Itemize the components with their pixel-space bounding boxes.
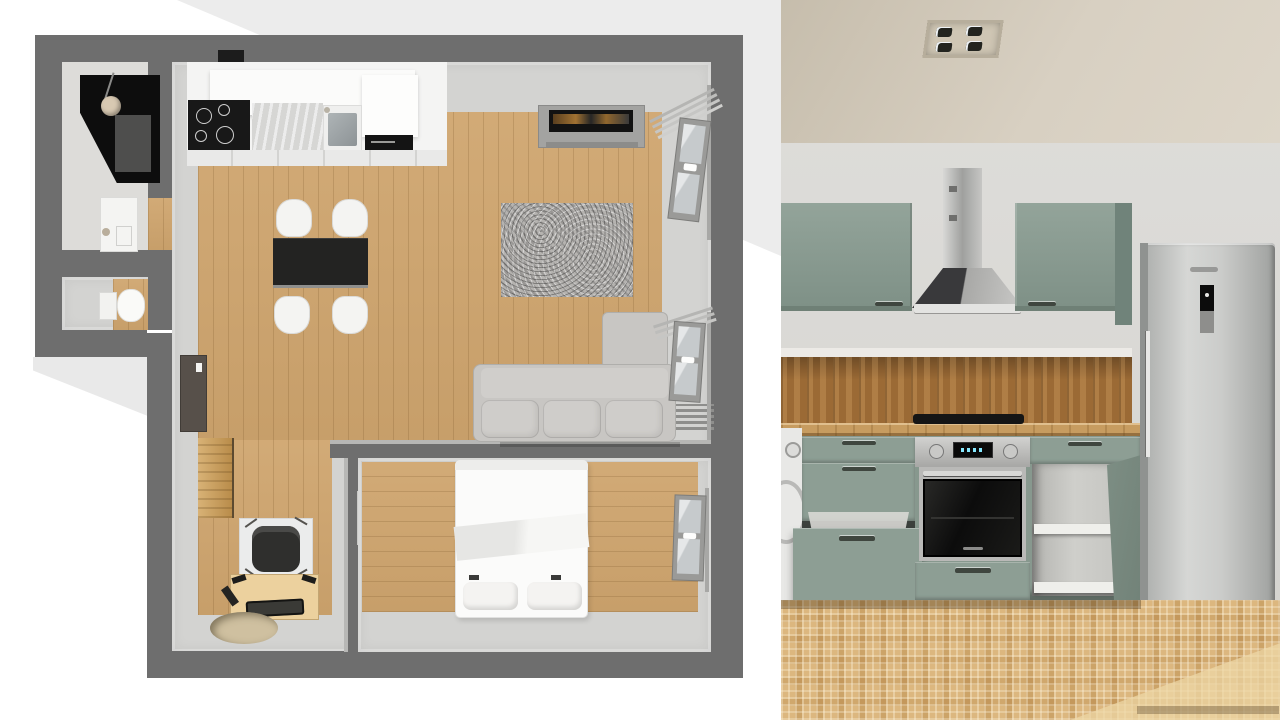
basin-bowl (116, 226, 132, 246)
spotlight (935, 42, 952, 52)
sofa-floor-shadow (500, 442, 680, 447)
bed-pillow (463, 582, 518, 610)
bed-pillow (527, 582, 582, 610)
oven-door-handle (923, 471, 1022, 476)
sofa-back-band (481, 368, 668, 398)
tv-sideboard-shadow (546, 142, 638, 147)
sofa-chaise (602, 312, 668, 369)
toilet (99, 289, 147, 323)
window-glass (677, 539, 700, 575)
window-glass (678, 500, 701, 534)
window-handle (683, 163, 697, 172)
drawer-handle (842, 467, 876, 471)
toilet-cistern (99, 292, 117, 320)
cabinet-side-gable (1115, 203, 1132, 325)
control-panel-display (1200, 285, 1214, 311)
open-drawer-front (793, 528, 922, 606)
fridge-floor-shadow (1137, 706, 1279, 714)
round-rug (210, 612, 278, 644)
kitchen-floor (781, 600, 1280, 720)
window-glass (679, 124, 705, 164)
sofa-seat-cushion (481, 400, 539, 438)
cooktop (188, 100, 250, 150)
sink-basin (328, 113, 357, 146)
oven-display-digits (961, 448, 985, 452)
bed (455, 460, 588, 618)
window-handle (683, 533, 696, 539)
window-glass (674, 362, 698, 395)
oven-unit (915, 436, 1030, 600)
bed-frame-mark (551, 575, 561, 580)
window-glass (677, 326, 701, 357)
sofa-seat-cushion (543, 400, 601, 438)
wall-top (35, 35, 743, 62)
kitchen-tall-unit (362, 75, 418, 137)
oven-knob (929, 444, 944, 459)
bed-headboard (455, 460, 588, 470)
hood-switch-mark (949, 215, 957, 221)
dining-chair (332, 199, 368, 237)
office-chair (252, 526, 300, 572)
burner (196, 108, 212, 124)
oven-door-glass (923, 479, 1022, 557)
drawer-handle (955, 568, 991, 573)
door-handle (196, 363, 202, 372)
floor-plan-panel (0, 0, 781, 720)
window-middle-right (669, 322, 709, 408)
drawer-unit (802, 436, 915, 600)
induction-cooktop (913, 414, 1024, 424)
ceiling (781, 0, 1280, 143)
sofa-body (473, 364, 676, 442)
counter-drawer-front-band (187, 150, 447, 166)
washer-dial (785, 442, 801, 458)
burner (195, 130, 207, 142)
oven-display (953, 442, 993, 458)
drawer-handle (839, 536, 875, 541)
wall-bathroom-wc-partition (62, 250, 172, 277)
cabinet-floor-shadow (781, 600, 1141, 609)
dining-chair (274, 296, 310, 334)
floor-sheen (781, 600, 1280, 720)
sofa-seat-cushion (605, 400, 663, 438)
desk-corner-bracket (301, 574, 316, 584)
drawer-handle (842, 441, 876, 445)
wall-left-lower (147, 333, 172, 678)
burner (218, 104, 230, 116)
kitchen-render-panel (781, 0, 1280, 720)
drawer-front-top (1030, 437, 1140, 464)
oven-control-strip (915, 437, 1030, 467)
entry-door (180, 355, 207, 432)
wall-bedroom-left (344, 458, 358, 652)
drawer-handle (1068, 442, 1102, 446)
hood-switch-mark (949, 186, 957, 192)
bathroom-door-opening (148, 198, 172, 250)
window-handle (681, 356, 694, 363)
burner (216, 126, 234, 144)
tv-screen-content (553, 114, 629, 124)
basin-faucet (102, 228, 110, 236)
dining-chair (276, 199, 312, 237)
washbasin (100, 197, 138, 252)
fridge-handle (1146, 331, 1150, 457)
oven-bottom-drawer (915, 562, 1030, 600)
wall-hood-mark (218, 50, 244, 62)
dining-chair (332, 296, 368, 334)
shower-tray (115, 115, 151, 172)
upper-cabinet-right (1015, 203, 1132, 311)
tv-screen (549, 110, 633, 132)
display-dot (1205, 293, 1209, 297)
drawer-front-top (802, 437, 915, 463)
appliance-indicator (371, 141, 395, 143)
wall-bottom (147, 651, 743, 678)
shower-head (101, 96, 121, 116)
countertop (781, 423, 1140, 436)
kitchen-sink (323, 105, 362, 152)
screenshot-root (0, 0, 1280, 720)
living-room-rug (501, 203, 633, 297)
spotlight (935, 27, 952, 37)
oven-brand-badge (963, 547, 983, 550)
ceiling-light-panel (922, 20, 1003, 58)
tall-wooden-cabinet (198, 438, 232, 518)
spotlight (965, 41, 982, 51)
toilet-bowl (117, 289, 145, 322)
under-cabinet-strip (781, 348, 1132, 357)
hood-canopy (912, 268, 1023, 308)
bed-duvet-fold (454, 513, 590, 561)
wall-right (711, 35, 743, 678)
fridge-control-panel (1200, 285, 1214, 333)
wall-left-bathroom-block (35, 35, 62, 357)
spotlight (965, 26, 982, 36)
cabinet-handle (875, 302, 903, 306)
oven-door (919, 467, 1026, 561)
worktop-marble (252, 103, 323, 152)
cabinet-handle (1028, 302, 1056, 306)
oven-inner-window-line (931, 517, 1014, 519)
fridge-brand-logo (1190, 267, 1218, 272)
upper-cabinet-left (781, 203, 912, 311)
window-bedroom (672, 495, 709, 586)
tv-sideboard (538, 105, 645, 148)
oven-knob (1003, 444, 1018, 459)
desk-corner-bracket (231, 574, 246, 584)
bed-frame-mark (469, 575, 479, 580)
hood-rim (914, 304, 1021, 313)
sink-faucet (324, 107, 330, 113)
dining-table (273, 238, 368, 288)
wall-bathroom-block-bottom (35, 330, 147, 357)
